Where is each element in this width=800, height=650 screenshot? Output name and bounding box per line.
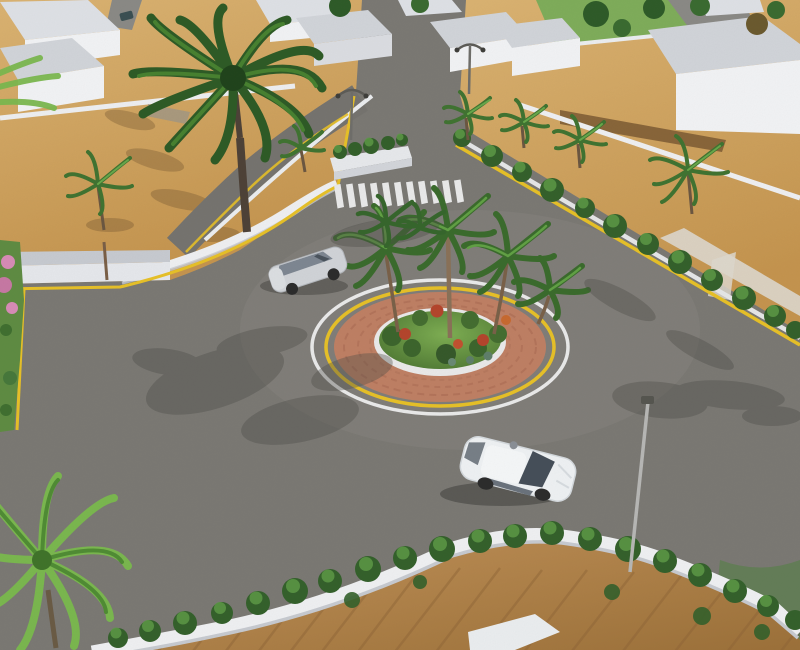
green-shrub bbox=[0, 324, 12, 336]
palm-trunk-tall bbox=[448, 236, 450, 338]
green-shrub bbox=[3, 371, 17, 385]
bush-on-deck bbox=[344, 592, 360, 608]
pink-flower-shrub bbox=[1, 255, 15, 269]
scene-svg bbox=[0, 0, 800, 650]
lamp-bulb bbox=[364, 94, 369, 99]
tree bbox=[583, 1, 609, 27]
bush-on-deck bbox=[604, 584, 620, 600]
bush-on-deck bbox=[693, 607, 711, 625]
tree bbox=[767, 1, 785, 19]
render-image-development-aerial bbox=[0, 0, 800, 650]
palm-crown-center bbox=[32, 550, 52, 570]
green-shrub bbox=[0, 404, 12, 416]
pink-flower-shrub bbox=[6, 302, 18, 314]
lamp-pole bbox=[351, 92, 352, 140]
lamp-bulb bbox=[455, 48, 460, 53]
palm-crown-center bbox=[220, 65, 246, 91]
lamp-head bbox=[641, 396, 654, 404]
palm-shadow-on-sand bbox=[86, 218, 134, 232]
lamp-bulb bbox=[336, 94, 341, 99]
tree bbox=[613, 19, 631, 37]
lamp-bulb bbox=[481, 48, 486, 53]
bush-on-deck bbox=[754, 624, 770, 640]
brown-tree bbox=[746, 13, 768, 35]
bush-on-deck bbox=[413, 575, 427, 589]
lamp-pole bbox=[469, 46, 470, 94]
